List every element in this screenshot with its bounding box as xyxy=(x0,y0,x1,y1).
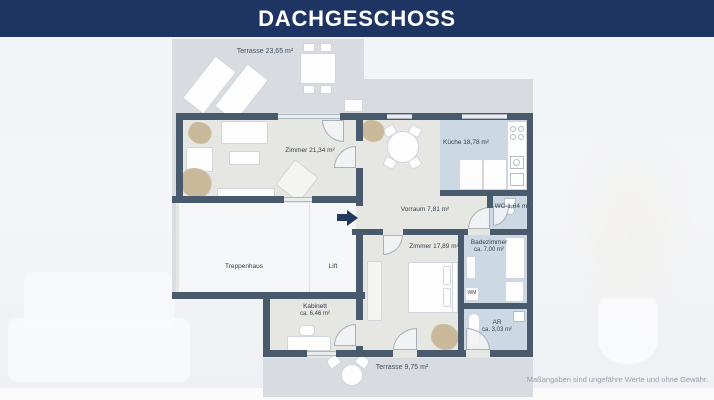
label-washing-machine: WM xyxy=(468,290,477,296)
room-label-ar-area: ca. 3,03 m² xyxy=(482,327,512,333)
pillow xyxy=(443,266,451,285)
shower xyxy=(505,237,525,279)
wall-segment xyxy=(356,346,363,357)
room-label-vorraum: Vorraum 7,81 m² xyxy=(401,206,449,213)
room-label-lift: Lift xyxy=(329,263,338,270)
wall-segment xyxy=(356,113,363,141)
kitchen-appliance xyxy=(510,173,524,186)
entrance-arrow-icon xyxy=(337,214,347,221)
coffee-table xyxy=(229,151,260,165)
wall-segment xyxy=(172,292,365,299)
kitchen-sink-basin xyxy=(513,159,520,166)
terrace-chair xyxy=(320,85,332,94)
wall-segment xyxy=(356,230,363,320)
window xyxy=(387,114,412,119)
room-label-badezimmer-area: ca. 7,00 m² xyxy=(474,247,504,253)
wall-segment xyxy=(487,196,493,208)
terrace-table xyxy=(300,53,336,84)
room-label-terrasse-top: Terrasse 23,65 m² xyxy=(237,48,293,55)
wall-segment xyxy=(356,168,363,206)
room-label-zimmer-living: Zimmer 21,34 m² xyxy=(285,147,334,154)
window xyxy=(284,197,312,202)
pillow xyxy=(443,288,451,307)
room-label-terrasse-bottom: Terrasse 9,75 m² xyxy=(376,364,429,371)
stove-burner-icon xyxy=(510,126,516,132)
room-label-kabinett-area: ca. 6,46 m² xyxy=(300,311,330,317)
page-title: DACHGESCHOSS xyxy=(0,0,714,37)
wardrobe xyxy=(367,261,382,321)
wall-segment xyxy=(263,299,270,357)
terrace-chair xyxy=(303,43,315,52)
sofa xyxy=(221,121,268,144)
plant-icon xyxy=(432,324,458,350)
terrace-table xyxy=(341,364,363,386)
wall-segment xyxy=(458,303,533,309)
wall-segment xyxy=(527,113,533,356)
wall-segment xyxy=(403,229,463,235)
wall-segment xyxy=(336,350,393,357)
disclaimer-text: Maßangaben sind ungefähre Werte und ohne… xyxy=(527,375,708,384)
wall-segment xyxy=(458,235,464,352)
room-label-wc: WC 1,64 m² xyxy=(495,203,530,210)
room-treppenhaus-floor xyxy=(179,203,356,292)
wall-segment xyxy=(176,113,183,203)
room-label-kueche: Küche 18,78 m² xyxy=(443,139,489,146)
entrance-arrow-head-icon xyxy=(347,210,358,226)
window xyxy=(278,114,340,119)
plant-icon xyxy=(362,120,384,142)
title-bar: DACHGESCHOSS xyxy=(0,0,714,37)
plan-panel-terrace-bottom xyxy=(263,356,533,397)
desk-chair xyxy=(299,325,315,336)
wall-segment xyxy=(172,196,284,203)
wall-segment xyxy=(176,113,278,120)
plant-icon xyxy=(189,122,211,144)
kitchen-island xyxy=(483,159,507,190)
stove-burner-icon xyxy=(518,126,524,132)
window xyxy=(462,114,507,119)
window xyxy=(307,351,336,356)
room-label-ar: AR xyxy=(492,319,501,326)
stove-burner-icon xyxy=(518,134,524,140)
room-label-zimmer-bed: Zimmer 17,89 m² xyxy=(409,243,458,250)
room-label-treppenhaus: Treppenhaus xyxy=(225,263,263,270)
background-plant-leaves xyxy=(560,120,700,310)
terrace-chair xyxy=(344,99,363,112)
terrace-chair xyxy=(320,43,332,52)
room-label-kabinett: Kabinett xyxy=(303,303,327,310)
terrace-chair xyxy=(303,85,315,94)
background-plant-pot xyxy=(598,298,658,364)
stove-burner-icon xyxy=(510,134,516,140)
background-sofa-backrest xyxy=(24,272,174,330)
floorplan-page: Terrasse 23,65 m² Zimmer 21,34 m² Küche … xyxy=(0,0,714,400)
ar-appliance xyxy=(513,311,525,322)
bathtub xyxy=(505,281,524,302)
room-label-badezimmer: Badezimmer xyxy=(471,239,507,246)
bath-sink xyxy=(466,256,476,279)
lift-divider-line xyxy=(309,203,310,292)
plant-icon xyxy=(181,168,211,198)
kitchen-island xyxy=(459,159,483,190)
desk xyxy=(287,336,331,351)
